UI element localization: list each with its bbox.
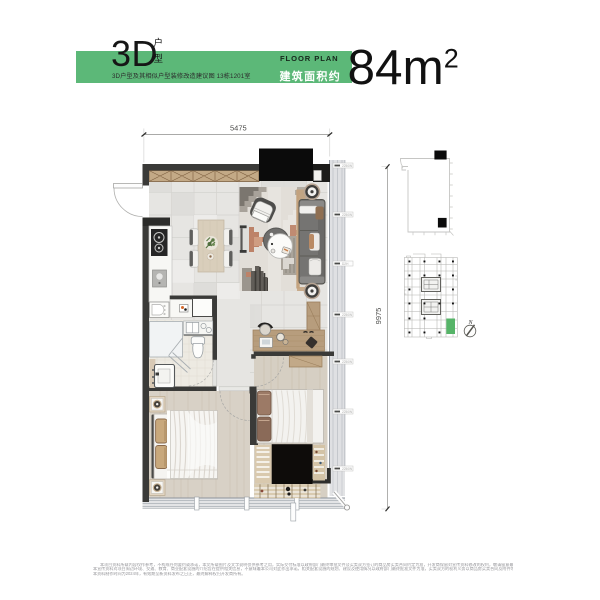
svg-text:2250W: 2250W <box>342 164 352 168</box>
svg-text:D2H: D2H <box>342 262 349 266</box>
svg-text:2250W: 2250W <box>342 467 352 471</box>
svg-text:9975: 9975 <box>374 308 383 325</box>
svg-text:5475: 5475 <box>230 124 247 133</box>
svg-text:2250W: 2250W <box>342 360 352 364</box>
svg-text:2250W: 2250W <box>342 213 352 217</box>
svg-text:N: N <box>467 320 473 326</box>
svg-text:2250W: 2250W <box>342 410 352 414</box>
svg-text:2250W: 2250W <box>342 313 352 317</box>
